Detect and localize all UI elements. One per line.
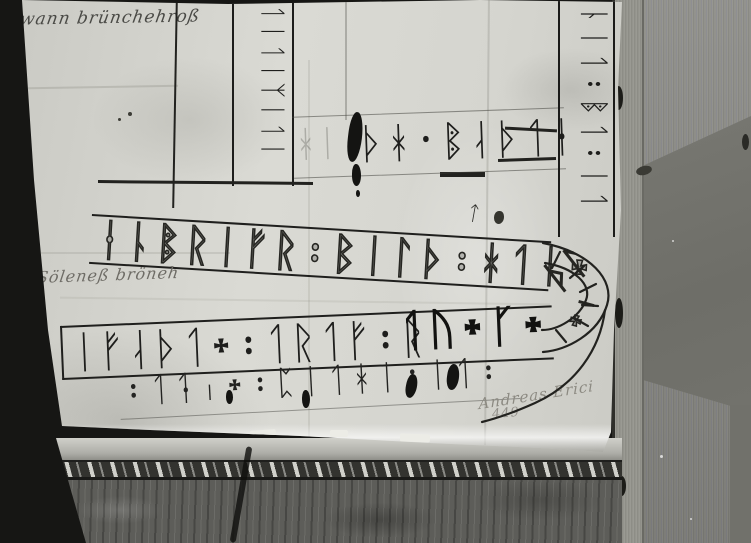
- dust-speck: [690, 518, 692, 520]
- dust-speck: [660, 455, 663, 458]
- signature-number: 449: [491, 405, 520, 422]
- annotation-top-left: wann brünchehroß: [18, 6, 201, 29]
- wood-knot: [615, 298, 623, 328]
- paper-crease: [28, 85, 178, 89]
- ink-blob: [226, 390, 233, 404]
- archival-photograph: wann brünchehroß ᛐᛁᛐᛁᛉᛁᛐᛁ ᚼᛁ ᚦᚼ᛫ᛔᛆᚦᛐᚽ ᚿᛁ…: [0, 0, 751, 543]
- wood-knot: [742, 134, 749, 150]
- ink-drip: [356, 190, 360, 197]
- rune-band-right-vertical: ᚿᛁᛐ᛬ᛔᛐ᛬ᛁᛐ: [558, 0, 615, 237]
- ink-speck: [118, 118, 121, 121]
- wood-panel: [612, 0, 751, 543]
- rune-band-top-vertical: ᛐᛁᛐᛁᛉᛁᛐᛁ: [232, 0, 294, 186]
- hatched-band: [0, 460, 622, 480]
- marbled-band: [0, 480, 622, 543]
- ink-blot: [494, 211, 504, 224]
- ink-speck: [128, 112, 132, 116]
- torn-chip: [400, 433, 430, 442]
- table-edge-strip: [0, 438, 622, 543]
- faint-line: [345, 0, 347, 120]
- rune-text-top-vertical: ᛐᛁᛐᛁᛉᛁᛐᛁ: [257, 4, 286, 161]
- rune-text-right-band: ᚿᛁᛐ᛬ᛔᛐ᛬ᛁᛐ: [577, 6, 610, 213]
- ink-blob: [352, 164, 361, 186]
- rune-text-lower-band-bold: ᛐᚢ᛭ᚴ᛭: [398, 301, 552, 356]
- ink-blob: [302, 390, 310, 408]
- annotation-mid-left: bir Söleneß bröneh: [4, 263, 181, 288]
- rune-text-middle-band: ᛂᚿᛔᚱᛁᚠᚱ᛬ᛒᛁᛚᚦ᛬ᚼᛐᛁ᛭: [95, 216, 597, 294]
- crossbar-line: [98, 180, 313, 184]
- rune-band-first: ᚼᛁ ᚦᚼ᛫ᛔᛆᚦᛐᚽ: [292, 107, 566, 178]
- torn-chip: [330, 430, 348, 437]
- vertical-line: [172, 0, 178, 208]
- wood-smooth-edge: [730, 405, 751, 543]
- rune-text-loop-lower: ᛭ᛧ: [557, 288, 601, 334]
- rune-text-ghost: ᚼᛁ: [294, 124, 339, 165]
- dust-speck: [672, 240, 674, 242]
- rune-mark: ᛏ: [466, 201, 482, 225]
